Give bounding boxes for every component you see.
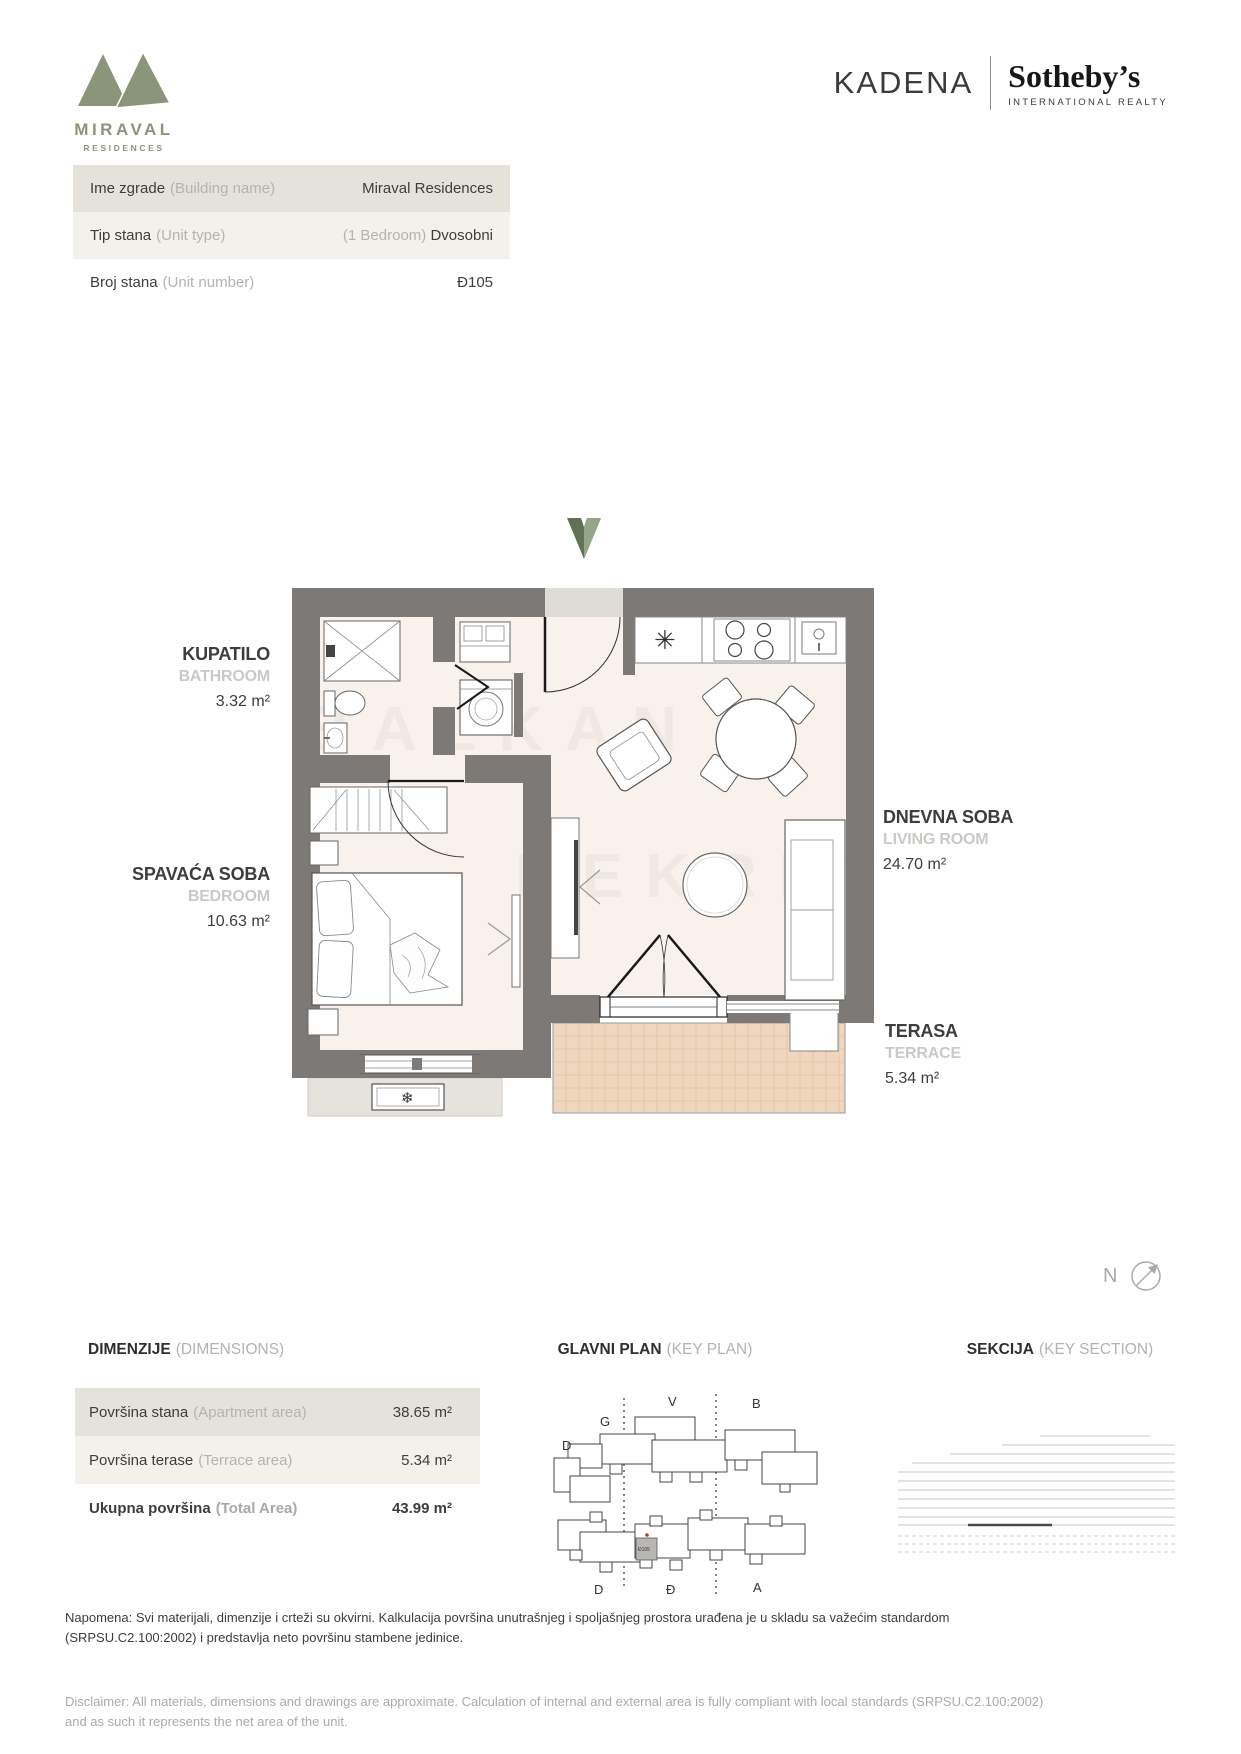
entrance-threshold — [545, 588, 623, 617]
key-section-header: SEKCIJA(KEY SECTION) — [910, 1341, 1210, 1359]
closet — [460, 622, 510, 662]
north-indicator: N — [1103, 1256, 1165, 1296]
room-area: 3.32 m² — [179, 694, 270, 710]
entrance-arrow-icon — [567, 518, 601, 559]
svg-text:❄: ❄ — [401, 1090, 414, 1107]
sothebys-name: Sotheby’s — [1008, 58, 1168, 95]
svg-text:B: B — [752, 1396, 761, 1411]
room-area: 5.34 m² — [885, 1071, 961, 1087]
info-value: Miraval Residences — [362, 180, 493, 197]
info-label-en: (Unit type) — [156, 227, 225, 244]
room-label-terrace: TERASA TERRACE 5.34 m² — [885, 1022, 961, 1087]
dims-label: Ukupna površina(Total Area) — [89, 1500, 297, 1517]
kadena-logo: KADENA — [834, 65, 973, 101]
room-label-bedroom: SPAVAĆA SOBA BEDROOM 10.63 m² — [132, 865, 270, 930]
note-english: Disclaimer: All materials, dimensions an… — [65, 1692, 1065, 1732]
svg-text:Đ105: Đ105 — [638, 1547, 650, 1553]
info-value: (1 Bedroom) Dvosobni — [343, 227, 493, 244]
info-row-building: Ime zgrade(Building name) Miraval Reside… — [73, 165, 510, 212]
miraval-logo: MIRAVAL RESIDENCES — [72, 48, 176, 153]
dims-row-total: Ukupna površina(Total Area) 43.99 m² — [75, 1484, 480, 1532]
toilet — [324, 691, 365, 716]
info-label: Tip stana(Unit type) — [90, 227, 225, 244]
dims-row-apartment: Površina stana(Apartment area) 38.65 m² — [75, 1388, 480, 1436]
room-name-en: BEDROOM — [132, 889, 270, 905]
kitchen-appliance — [802, 622, 836, 654]
info-row-unit-number: Broj stana(Unit number) Đ105 — [73, 259, 510, 306]
room-area: 24.70 m² — [883, 857, 1013, 873]
kitchen-sink-icon: ✳ — [654, 625, 676, 655]
unit-info-table: Ime zgrade(Building name) Miraval Reside… — [73, 165, 510, 306]
brand-divider — [990, 56, 991, 110]
dims-value: 43.99 m² — [392, 1500, 452, 1517]
svg-text:G: G — [600, 1414, 610, 1429]
info-label: Broj stana(Unit number) — [90, 274, 254, 291]
svg-text:Đ: Đ — [666, 1582, 675, 1597]
side-table — [790, 1007, 838, 1051]
room-name: TERASA — [885, 1022, 961, 1040]
room-name-en: BATHROOM — [179, 669, 270, 685]
bedroom-window — [356, 1055, 481, 1073]
sothebys-logo: Sotheby’s INTERNATIONAL REALTY — [1008, 58, 1168, 108]
ac-unit: ❄ — [372, 1084, 444, 1110]
living-window — [727, 1001, 839, 1013]
room-name: SPAVAĆA SOBA — [132, 865, 270, 883]
key-section-drawing — [890, 1428, 1180, 1573]
svg-text:D: D — [594, 1582, 603, 1597]
room-name-en: TERRACE — [885, 1046, 961, 1062]
room-area: 10.63 m² — [132, 914, 270, 930]
info-value: Đ105 — [457, 274, 493, 291]
dims-row-terrace: Površina terase(Terrace area) 5.34 m² — [75, 1436, 480, 1484]
dims-value: 38.65 m² — [393, 1404, 452, 1421]
nightstand-upper — [310, 841, 338, 865]
info-row-unit-type: Tip stana(Unit type) (1 Bedroom) Dvosobn… — [73, 212, 510, 259]
info-label-sr: Tip stana — [90, 227, 151, 244]
north-letter: N — [1103, 1265, 1117, 1288]
floor-plan-drawing: BALKAN NEKRET ❄ — [290, 515, 875, 1130]
svg-text:A: A — [753, 1580, 762, 1595]
brand-lockup: KADENA Sotheby’s INTERNATIONAL REALTY — [834, 56, 1168, 110]
north-compass-icon — [1125, 1256, 1165, 1296]
page: MIRAVAL RESIDENCES KADENA Sotheby’s INTE… — [0, 0, 1241, 1754]
bed — [312, 873, 462, 1005]
miraval-title: MIRAVAL — [72, 120, 176, 140]
miraval-subtitle: RESIDENCES — [72, 143, 176, 153]
room-name: KUPATILO — [179, 645, 270, 663]
room-label-bathroom: KUPATILO BATHROOM 3.32 m² — [179, 645, 270, 710]
miraval-mountains-icon — [74, 48, 174, 110]
key-plan-drawing: Đ105 V B G D D Đ A — [540, 1392, 840, 1607]
dimensions-header: DIMENZIJE(DIMENSIONS) — [88, 1341, 284, 1359]
info-label: Ime zgrade(Building name) — [90, 180, 275, 197]
coffee-table — [683, 853, 747, 917]
sothebys-subtitle: INTERNATIONAL REALTY — [1008, 97, 1168, 108]
info-label-sr: Broj stana — [90, 274, 158, 291]
shower — [324, 621, 400, 681]
nightstand-lower — [308, 1009, 338, 1035]
room-name-en: LIVING ROOM — [883, 832, 1013, 848]
note-serbian: Napomena: Svi materijali, dimenzije i cr… — [65, 1608, 1065, 1648]
key-plan-header: GLAVNI PLAN(KEY PLAN) — [505, 1341, 805, 1359]
dims-label: Površina terase(Terrace area) — [89, 1452, 292, 1469]
dims-label: Površina stana(Apartment area) — [89, 1404, 307, 1421]
room-name: DNEVNA SOBA — [883, 808, 1013, 826]
sofa — [785, 820, 845, 1000]
svg-text:D: D — [562, 1438, 571, 1453]
info-label-sr: Ime zgrade — [90, 180, 165, 197]
dims-value: 5.34 m² — [401, 1452, 452, 1469]
room-label-living-room: DNEVNA SOBA LIVING ROOM 24.70 m² — [883, 808, 1013, 873]
floor-plan: BALKAN NEKRET ❄ — [290, 515, 875, 1130]
bathroom-sink — [324, 723, 347, 753]
svg-text:V: V — [668, 1394, 677, 1409]
info-label-en: (Building name) — [170, 180, 275, 197]
info-label-en: (Unit number) — [163, 274, 255, 291]
wardrobe — [310, 787, 447, 833]
dining-table — [716, 699, 796, 779]
dimensions-table: Površina stana(Apartment area) 38.65 m² … — [75, 1388, 480, 1532]
